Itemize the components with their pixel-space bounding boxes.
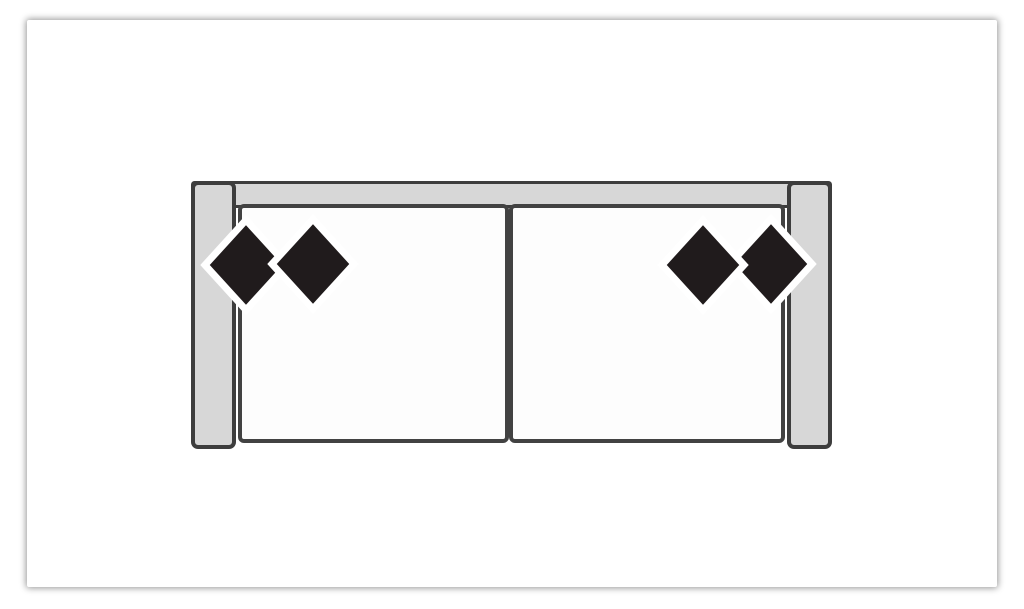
sofa-seat-right	[511, 206, 783, 441]
sofa-seat-left	[240, 206, 507, 441]
product-image-card	[27, 20, 997, 587]
sofa-armrest-left	[193, 183, 234, 447]
sofa-backrest	[193, 183, 831, 207]
sofa-top-view-diagram	[191, 181, 832, 450]
sofa-armrest-right	[789, 183, 830, 447]
screenshot-canvas	[0, 0, 1024, 609]
